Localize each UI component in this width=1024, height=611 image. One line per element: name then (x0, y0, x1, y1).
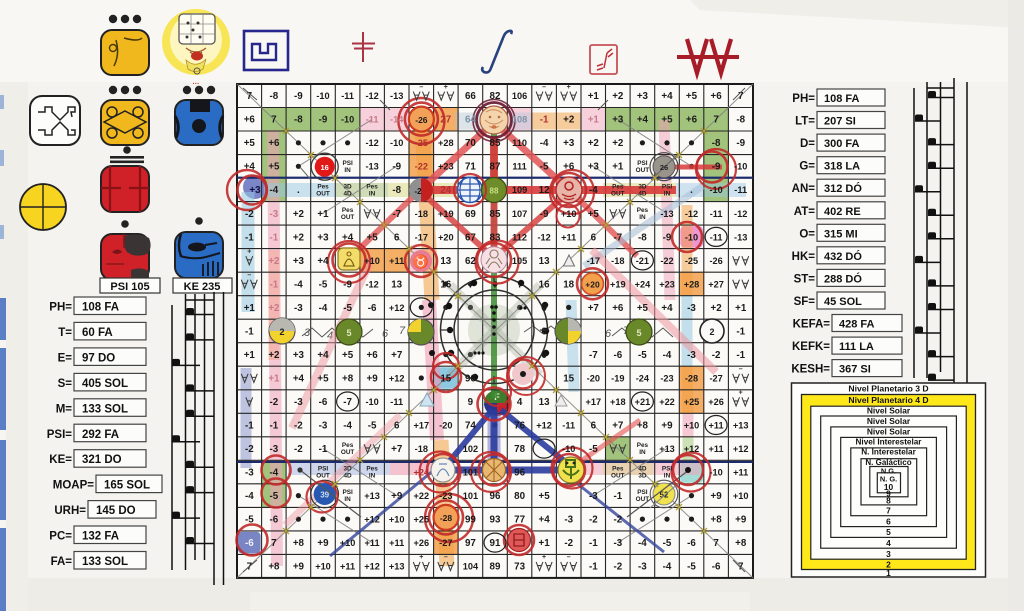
svg-text:-10: -10 (709, 185, 722, 195)
svg-text:-8: -8 (638, 232, 647, 243)
svg-text:KEFA=: KEFA= (793, 319, 831, 331)
svg-text:-17: -17 (415, 232, 428, 242)
svg-text:-3: -3 (687, 350, 696, 361)
svg-text:+6: +6 (612, 303, 624, 314)
svg-text:+25: +25 (684, 397, 700, 407)
svg-text:-5: -5 (687, 562, 696, 573)
svg-text:-11: -11 (341, 91, 354, 101)
svg-text:207 SI: 207 SI (824, 116, 856, 128)
svg-text:+1: +1 (268, 373, 280, 384)
svg-text:-1: -1 (319, 444, 328, 455)
svg-text:-11: -11 (562, 420, 575, 430)
svg-text:+23: +23 (659, 279, 675, 289)
svg-text:+5: +5 (367, 232, 379, 243)
svg-text:-5: -5 (638, 350, 647, 361)
svg-text:-18: -18 (415, 209, 428, 219)
svg-text:7: 7 (399, 325, 406, 337)
svg-text:70: 70 (465, 138, 476, 149)
svg-text:15: 15 (563, 373, 574, 384)
svg-text:+3: +3 (563, 138, 575, 149)
svg-text:+11: +11 (561, 232, 576, 242)
svg-text:16: 16 (539, 279, 550, 290)
svg-text:6: 6 (591, 420, 597, 431)
svg-text:+10: +10 (364, 256, 380, 266)
svg-text:5: 5 (636, 328, 641, 338)
svg-text:133 SOL: 133 SOL (82, 556, 128, 568)
svg-text:+20: +20 (438, 232, 454, 242)
svg-text:+23: +23 (438, 162, 454, 172)
svg-text:-13: -13 (734, 232, 747, 242)
svg-text:+7: +7 (391, 444, 403, 455)
svg-text:-11: -11 (366, 115, 379, 125)
svg-text:+17: +17 (586, 397, 602, 407)
svg-text:321 DO: 321 DO (82, 454, 122, 466)
svg-text:+17: +17 (414, 420, 430, 430)
svg-text:OUT: OUT (611, 190, 625, 197)
svg-text:3D: 3D (638, 183, 647, 190)
svg-text:IN: IN (664, 190, 671, 197)
svg-text:165 SOL: 165 SOL (104, 480, 150, 492)
svg-text:24: 24 (440, 185, 451, 196)
svg-text:-5: -5 (270, 491, 279, 502)
svg-text:+12: +12 (684, 444, 700, 454)
svg-text:Nivel Planetario 4 D: Nivel Planetario 4 D (848, 395, 928, 405)
svg-text:AN=: AN= (792, 183, 816, 195)
svg-text:AT=: AT= (794, 206, 815, 218)
svg-text:107: 107 (512, 209, 527, 219)
svg-text:13: 13 (440, 256, 451, 267)
svg-text:+8: +8 (711, 515, 723, 526)
svg-text:83: 83 (490, 232, 501, 243)
svg-text:+5: +5 (661, 115, 673, 126)
svg-text:Nivel Solar: Nivel Solar (867, 406, 911, 416)
svg-text:+1: +1 (588, 91, 600, 102)
svg-text:6: 6 (886, 517, 891, 527)
svg-text:-6: -6 (687, 538, 696, 549)
svg-text:6: 6 (394, 232, 400, 243)
svg-text:+1: +1 (539, 538, 551, 549)
svg-text:-19: -19 (611, 373, 624, 383)
svg-text:PC=: PC= (49, 531, 72, 543)
svg-text:-9: -9 (343, 279, 352, 290)
svg-text:+4: +4 (317, 350, 329, 361)
svg-text:IN: IN (664, 473, 671, 480)
svg-text:-7: -7 (589, 350, 598, 361)
svg-text:-5: -5 (589, 444, 598, 455)
svg-text:+1: +1 (588, 115, 600, 126)
svg-text:+11: +11 (709, 444, 724, 454)
svg-text:-1: -1 (245, 326, 254, 337)
svg-text:-6: -6 (245, 538, 254, 549)
svg-text:-11: -11 (390, 397, 403, 407)
svg-text:+5: +5 (268, 162, 280, 173)
svg-text:-22: -22 (660, 256, 673, 266)
svg-text:+22: +22 (414, 491, 430, 501)
svg-text:M=: M= (56, 403, 73, 415)
svg-text:PH=: PH= (49, 302, 72, 314)
svg-text:-1: -1 (270, 420, 279, 431)
svg-text:-2: -2 (589, 515, 598, 526)
svg-text:FA=: FA= (51, 556, 73, 568)
svg-text:+6: +6 (686, 115, 698, 126)
svg-text:12: 12 (539, 185, 550, 196)
svg-text:+9: +9 (293, 562, 305, 573)
svg-text:–: – (444, 554, 448, 561)
svg-text:-11: -11 (710, 209, 723, 219)
svg-text:PSI=: PSI= (47, 429, 73, 441)
svg-text:6: 6 (394, 420, 400, 431)
svg-text:5: 5 (886, 527, 891, 537)
svg-text:16: 16 (321, 163, 329, 172)
svg-text:-6: -6 (368, 303, 377, 314)
svg-text:-9: -9 (540, 209, 549, 220)
svg-text:-1: -1 (589, 538, 598, 549)
svg-text:+1: +1 (612, 162, 624, 173)
svg-text:133 SOL: 133 SOL (82, 403, 128, 415)
svg-text:-13: -13 (660, 209, 673, 219)
svg-text:PSI: PSI (342, 160, 353, 167)
svg-text:3D: 3D (638, 473, 647, 480)
svg-text:-3: -3 (613, 538, 622, 549)
svg-text:85: 85 (490, 209, 501, 220)
svg-text:+28: +28 (684, 279, 700, 289)
svg-text:99: 99 (465, 515, 476, 526)
svg-text:+3: +3 (249, 185, 261, 196)
svg-text:-11: -11 (710, 232, 723, 242)
svg-text:-17: -17 (587, 256, 600, 266)
svg-text:405 SOL: 405 SOL (82, 378, 128, 390)
svg-text:-4: -4 (343, 420, 352, 431)
svg-text:OUT: OUT (341, 214, 355, 221)
svg-text:-4: -4 (270, 468, 279, 479)
svg-text:OUT: OUT (316, 190, 330, 197)
svg-text:-4: -4 (294, 279, 303, 290)
svg-text:+3: +3 (612, 115, 624, 126)
svg-text:PSI: PSI (637, 489, 648, 496)
svg-text:96: 96 (490, 491, 501, 502)
svg-text:+3: +3 (317, 232, 329, 243)
svg-text:-2: -2 (270, 397, 279, 408)
svg-text:+2: +2 (293, 209, 305, 220)
svg-text:-14: -14 (390, 115, 404, 125)
svg-text:PSI: PSI (662, 466, 673, 473)
svg-text:-12: -12 (365, 138, 378, 148)
svg-text:+: + (419, 554, 423, 561)
svg-text:+7: +7 (391, 350, 403, 361)
svg-text:315 MI: 315 MI (824, 228, 858, 240)
svg-text:ST=: ST= (794, 273, 816, 285)
svg-text:101: 101 (463, 468, 478, 478)
svg-text:-3: -3 (270, 209, 279, 220)
svg-text:Nivel Interestelar: Nivel Interestelar (856, 438, 923, 447)
svg-text:+11: +11 (340, 562, 355, 572)
svg-text:111 LA: 111 LA (839, 341, 874, 353)
svg-text:7: 7 (713, 538, 719, 549)
svg-text:4: 4 (886, 538, 891, 548)
svg-text:93: 93 (490, 515, 501, 526)
svg-text:OUT: OUT (636, 496, 650, 503)
svg-text:IN: IN (344, 167, 351, 174)
svg-text:+4: +4 (317, 256, 329, 267)
svg-text:Pes: Pes (366, 183, 378, 190)
svg-text:.: . (518, 279, 521, 290)
svg-text:-4: -4 (270, 185, 279, 196)
svg-text:4D: 4D (344, 190, 353, 197)
svg-text:+2: +2 (563, 115, 575, 126)
svg-text:-6: -6 (613, 350, 622, 361)
svg-text:MOAP=: MOAP= (53, 480, 95, 492)
svg-text:312 DÓ: 312 DÓ (824, 182, 862, 195)
svg-text:PH=: PH= (792, 93, 815, 105)
svg-text:-12: -12 (537, 232, 550, 242)
svg-text:112: 112 (512, 232, 527, 242)
svg-text:4D: 4D (344, 473, 353, 480)
svg-text:+11: +11 (389, 256, 404, 266)
svg-text:+7: +7 (588, 303, 600, 314)
svg-text:-1: -1 (736, 326, 745, 337)
svg-text:–: – (419, 84, 423, 91)
svg-text:69: 69 (465, 209, 476, 220)
svg-text:+12: +12 (364, 562, 380, 572)
svg-text:-9: -9 (319, 115, 328, 126)
svg-text:108 FA: 108 FA (824, 93, 860, 105)
svg-text:-11: -11 (734, 185, 747, 195)
svg-text:-20: -20 (587, 373, 600, 383)
svg-text:-10: -10 (709, 468, 722, 478)
svg-text:OUT: OUT (636, 167, 650, 174)
svg-text:-4: -4 (663, 562, 672, 573)
svg-text:-2: -2 (613, 562, 622, 573)
svg-text:+10: +10 (315, 562, 331, 572)
svg-text:-1: -1 (270, 232, 279, 243)
svg-text:145 DO: 145 DO (96, 505, 136, 517)
svg-text:71: 71 (465, 162, 476, 173)
svg-text:89: 89 (490, 562, 501, 573)
svg-text:+3: +3 (293, 256, 305, 267)
svg-text:IN: IN (344, 496, 351, 503)
svg-text:-24: -24 (636, 373, 650, 383)
svg-text:13: 13 (539, 397, 550, 408)
svg-text:+4: +4 (637, 115, 649, 126)
svg-text:+: + (567, 84, 571, 91)
svg-text:104: 104 (463, 562, 479, 572)
svg-text:+8: +8 (735, 538, 747, 549)
svg-text:+6: +6 (367, 350, 379, 361)
svg-text:+8: +8 (637, 420, 649, 431)
svg-text:PSI 105: PSI 105 (110, 281, 149, 293)
svg-text:402 RE: 402 RE (824, 206, 861, 218)
svg-text:+3: +3 (637, 91, 649, 102)
svg-text:-5: -5 (319, 279, 328, 290)
svg-text:8: 8 (886, 496, 891, 506)
svg-text:-18: -18 (415, 444, 428, 454)
svg-text:+9: +9 (367, 373, 379, 384)
svg-text:+5: +5 (244, 138, 256, 149)
svg-text:-26: -26 (415, 115, 428, 125)
svg-text:78: 78 (514, 444, 525, 455)
svg-text:+1: +1 (735, 303, 747, 314)
svg-text:97 DO: 97 DO (82, 352, 115, 364)
svg-text:-4: -4 (638, 538, 647, 549)
svg-text:-21: -21 (636, 256, 649, 266)
svg-text:Nivel Solar: Nivel Solar (867, 427, 911, 437)
svg-text:IN: IN (639, 214, 646, 221)
svg-text:-12: -12 (685, 209, 698, 219)
svg-text:+12: +12 (389, 373, 405, 383)
svg-text:-13: -13 (390, 91, 403, 101)
svg-text:–: – (567, 554, 571, 561)
svg-text:+5: +5 (539, 491, 551, 502)
svg-text:-3: -3 (638, 562, 647, 573)
svg-text:+6: +6 (268, 138, 280, 149)
svg-text:-1: -1 (245, 420, 254, 431)
svg-text:67: 67 (465, 232, 476, 243)
svg-text:96: 96 (514, 468, 525, 479)
svg-text:-2: -2 (245, 444, 254, 455)
svg-text:7: 7 (271, 115, 277, 126)
svg-text:367 SI: 367 SI (839, 364, 871, 376)
svg-text:1: 1 (886, 568, 891, 578)
svg-text:-1: -1 (589, 562, 598, 573)
svg-text:108 FA: 108 FA (82, 302, 119, 314)
svg-text:-2: -2 (245, 209, 254, 220)
svg-text:-25: -25 (685, 256, 698, 266)
svg-text:60 FA: 60 FA (82, 327, 113, 339)
svg-text:T=: T= (58, 327, 72, 339)
svg-text:-1: -1 (613, 491, 622, 502)
svg-text:0: 0 (541, 303, 547, 314)
svg-text:+27: +27 (708, 279, 724, 289)
svg-text:-5: -5 (343, 303, 352, 314)
svg-text:PSI: PSI (318, 466, 329, 473)
svg-text:–: – (739, 366, 743, 373)
svg-text:85: 85 (490, 138, 501, 149)
svg-text:+11: +11 (709, 420, 724, 430)
svg-text:+4: +4 (661, 91, 673, 102)
svg-text:-5: -5 (245, 515, 254, 526)
svg-text:+12: +12 (536, 420, 552, 430)
svg-text:73: 73 (514, 562, 525, 573)
svg-text:PSI: PSI (637, 160, 648, 167)
svg-text:74: 74 (465, 420, 476, 431)
svg-text:428 FA: 428 FA (839, 319, 875, 331)
svg-text:-7: -7 (343, 397, 352, 408)
svg-text:2: 2 (709, 327, 714, 337)
svg-text:13: 13 (391, 279, 402, 290)
svg-text:+: + (542, 554, 546, 561)
svg-text:300 FA: 300 FA (824, 138, 860, 150)
svg-text:62: 62 (465, 256, 476, 267)
svg-text:+5: +5 (317, 373, 329, 384)
svg-text:-3: -3 (270, 444, 279, 455)
svg-text:+13: +13 (389, 562, 405, 572)
svg-text:-3: -3 (589, 491, 598, 502)
svg-text:-9: -9 (712, 162, 721, 173)
svg-text:+4: +4 (661, 303, 673, 314)
svg-text:-10: -10 (316, 91, 329, 101)
svg-text:G=: G= (799, 161, 815, 173)
svg-text:-5: -5 (368, 420, 377, 431)
svg-text:♉: ♉ (413, 254, 429, 269)
svg-text:+9: +9 (317, 538, 329, 549)
svg-text:7: 7 (247, 91, 253, 102)
svg-text:102: 102 (463, 444, 478, 454)
svg-text:26: 26 (660, 163, 668, 172)
svg-text:-2: -2 (294, 420, 303, 431)
svg-text:+11: +11 (733, 468, 748, 478)
svg-text:-9: -9 (663, 232, 672, 243)
svg-text:0: 0 (541, 350, 547, 361)
svg-text:132 FA: 132 FA (82, 531, 119, 543)
svg-text:2: 2 (279, 327, 284, 337)
svg-text:106: 106 (512, 91, 527, 101)
svg-text:PSI: PSI (662, 183, 673, 190)
svg-text:Nivel Solar: Nivel Solar (867, 416, 911, 426)
svg-text:16: 16 (440, 279, 451, 290)
svg-text:13: 13 (539, 256, 550, 267)
svg-text:77: 77 (514, 515, 525, 526)
svg-text:+5: +5 (588, 209, 600, 220)
svg-text:+12: +12 (364, 515, 380, 525)
svg-text:3D: 3D (344, 466, 353, 473)
svg-text:+25: +25 (414, 515, 430, 525)
svg-text:+: + (444, 84, 448, 91)
svg-text:+1: +1 (244, 350, 256, 361)
svg-text:-1: -1 (736, 350, 745, 361)
svg-text:-7: -7 (613, 232, 622, 243)
svg-text:7: 7 (247, 562, 253, 573)
svg-text:-20: -20 (439, 420, 452, 430)
svg-text:+26: +26 (708, 397, 724, 407)
svg-text:4D: 4D (638, 190, 647, 197)
svg-text:-27: -27 (439, 538, 452, 548)
svg-text:PSI: PSI (342, 489, 353, 496)
svg-text:292 FA: 292 FA (82, 429, 119, 441)
svg-text:-1: -1 (540, 115, 549, 126)
svg-text:Pes: Pes (637, 207, 649, 214)
svg-text:-2: -2 (613, 515, 622, 526)
svg-text:109: 109 (512, 185, 527, 195)
svg-text:288 DÓ: 288 DÓ (824, 272, 862, 285)
svg-text:+2: +2 (588, 138, 600, 149)
svg-text:6: 6 (591, 232, 597, 243)
svg-text:15: 15 (440, 373, 451, 384)
svg-text:KEFK=: KEFK= (792, 341, 830, 353)
svg-text:-9: -9 (736, 138, 745, 149)
svg-text:+20: +20 (585, 279, 600, 289)
svg-text:+7: +7 (612, 420, 624, 431)
svg-text:+12: +12 (389, 303, 405, 313)
svg-text:+28: +28 (438, 138, 454, 148)
svg-text:80: 80 (514, 491, 525, 502)
svg-text:45 SOL: 45 SOL (824, 296, 862, 308)
svg-text:-12: -12 (365, 279, 378, 289)
svg-text:IN: IN (369, 190, 376, 197)
svg-text:-8: -8 (392, 185, 401, 196)
svg-text:+5: +5 (686, 91, 698, 102)
svg-text:-23: -23 (660, 373, 673, 383)
svg-text:+18: +18 (610, 397, 626, 407)
svg-text:-22: -22 (415, 162, 428, 172)
svg-text:+19: +19 (610, 279, 626, 289)
svg-text:111: 111 (512, 162, 526, 172)
svg-text:+2: +2 (612, 138, 624, 149)
svg-text:IN: IN (639, 449, 646, 456)
svg-text:27: 27 (440, 115, 451, 126)
svg-text:-3: -3 (245, 468, 254, 479)
svg-text:+4: +4 (539, 515, 551, 526)
svg-text:-2: -2 (294, 444, 303, 455)
